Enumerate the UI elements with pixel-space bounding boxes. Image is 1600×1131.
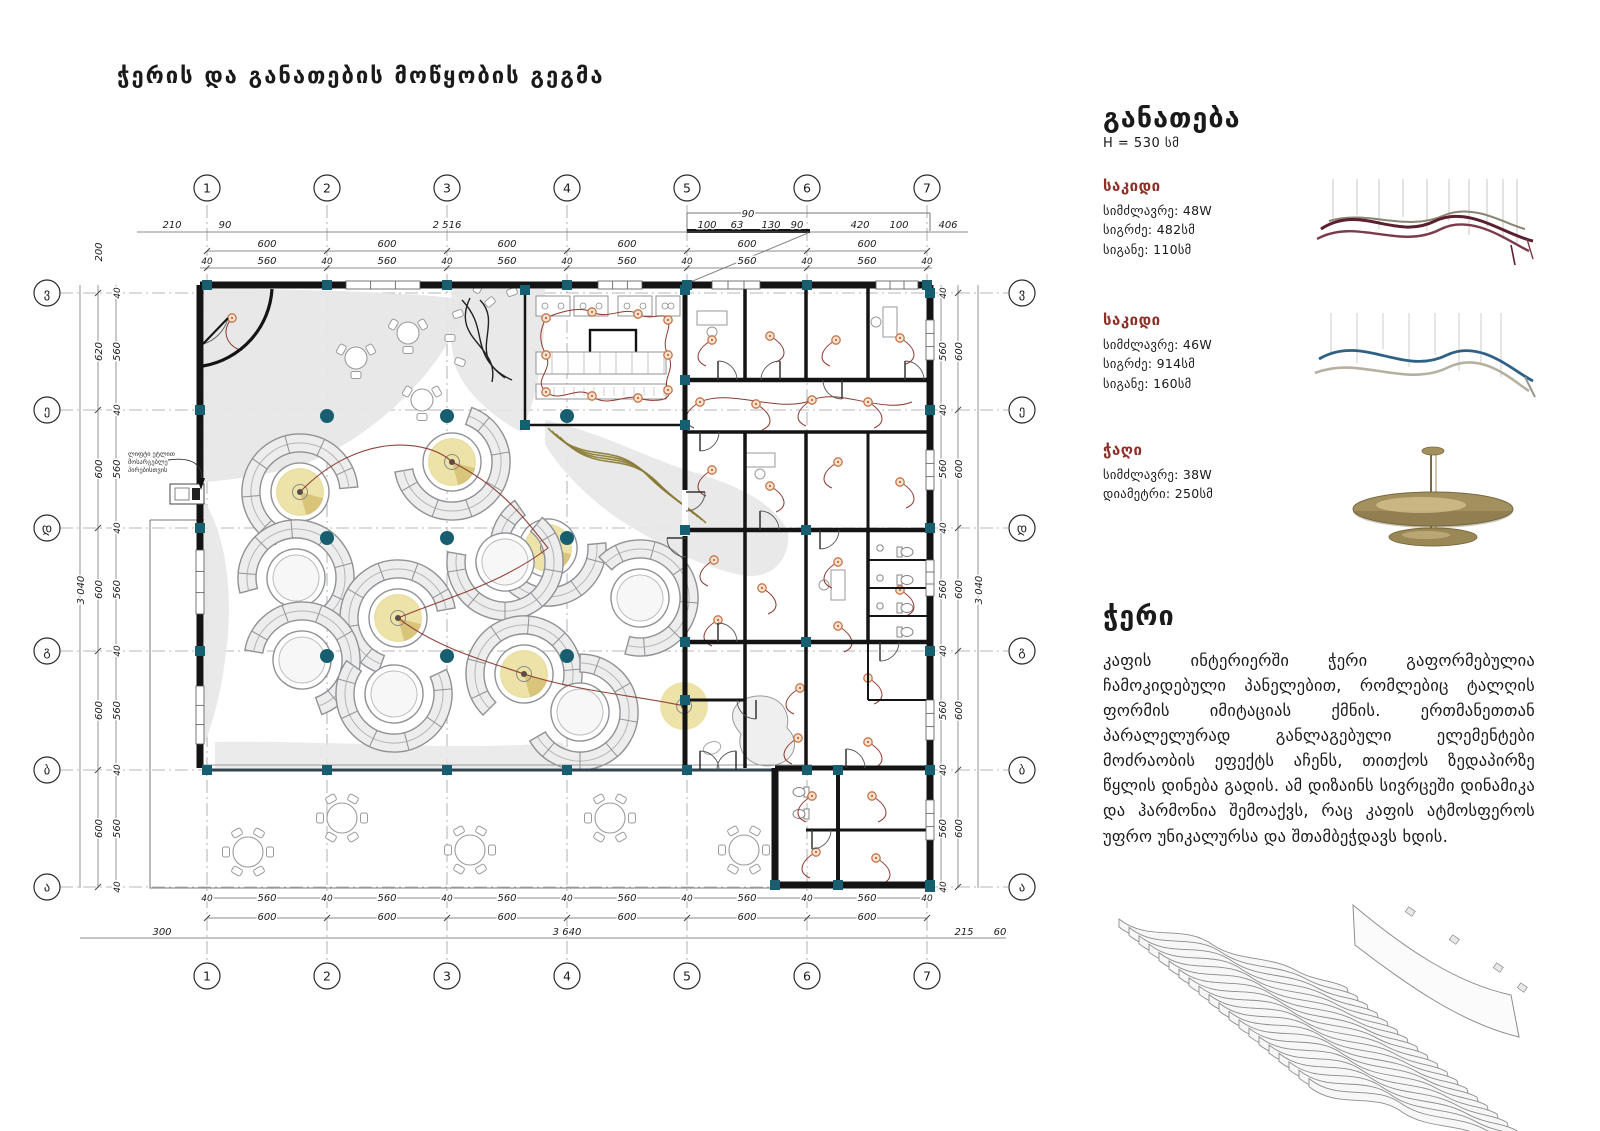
dimension-label: 40: [939, 287, 949, 299]
dimension-label: 40: [321, 257, 333, 267]
grid-bubble-label: 1: [203, 969, 211, 984]
dimension-label: 90: [791, 220, 804, 231]
dimension-label: 40: [113, 645, 123, 657]
grid-bubble-label: 5: [683, 181, 691, 196]
dimension-label: 560: [737, 893, 756, 904]
dimension-label: 600: [94, 701, 105, 720]
dimension-label: 40: [681, 257, 693, 267]
page: ჭერის და განათების მოწყობის გეგმა ლიფტი …: [0, 0, 1600, 1131]
dimension-label: 90: [742, 209, 755, 220]
dimension-label: 560: [112, 701, 123, 720]
grid-bubble-label: ვ: [1019, 286, 1025, 301]
dimension-label: 560: [112, 459, 123, 478]
grid-bubble-label: 5: [683, 969, 691, 984]
dimension-label: 600: [377, 239, 396, 250]
dimension-label: 40: [441, 894, 453, 904]
ceiling-heading: ჭერი: [1103, 601, 1548, 632]
grid-bubble-label: გ: [1018, 644, 1025, 659]
lift-annotation-line: ლიფტი ეტლით: [128, 451, 175, 458]
dimension-label: 560: [617, 256, 636, 267]
legend-item-chandelier: ჭაღი სიმძლავრე: 38W დიამეტრი: 250სმ: [1103, 441, 1548, 549]
fixture-spec: სიგანე: 160სმ: [1103, 374, 1303, 393]
dimension-label: 40: [113, 404, 123, 416]
dimension-label: 40: [441, 257, 453, 267]
dimension-label: 40: [321, 894, 333, 904]
dimension-label: 600: [257, 239, 276, 250]
dimension-label: 40: [801, 257, 813, 267]
grid-bubble-label: 4: [563, 181, 571, 196]
dimension-label: 560: [938, 459, 949, 478]
grid-bubble-label: 1: [203, 181, 211, 196]
dimension-label: 600: [497, 239, 516, 250]
grid-bubble-label: 3: [443, 969, 451, 984]
fixture-spec: სიმძლავრე: 48W: [1103, 201, 1303, 220]
dimension-label: 600: [857, 239, 876, 250]
grid-bubble-label: 6: [803, 181, 811, 196]
fixture-name: საკიდი: [1103, 311, 1303, 329]
dimension-label: 3 040: [76, 576, 87, 605]
dimension-label: 40: [939, 764, 949, 776]
doors: [667, 361, 924, 849]
ceiling-section: ჭერი კაფის ინტერიერში ჭერი გაფორმებულია …: [1103, 601, 1548, 1131]
legend-item-pendant-1: საკიდი სიმძლავრე: 48W სიგრძე: 482სმ სიგა…: [1103, 177, 1548, 285]
dimension-label: 600: [954, 459, 965, 478]
dimension-label: 40: [939, 404, 949, 416]
dimension-label: 90: [219, 220, 232, 231]
dimension-label: 600: [737, 239, 756, 250]
dimension-label: 40: [939, 522, 949, 534]
dimension-label: 130: [761, 220, 780, 231]
legend-item-pendant-2: საკიდი სიმძლავრე: 46W სიგრძე: 914სმ სიგა…: [1103, 311, 1548, 415]
dimension-label: 600: [857, 912, 876, 923]
dimension-label: 600: [737, 912, 756, 923]
dimension-label: 40: [681, 894, 693, 904]
dimension-label: 600: [617, 912, 636, 923]
fixture-spec: დიამეტრი: 250სმ: [1103, 484, 1303, 503]
grid-bubble-label: ე: [44, 403, 50, 418]
lighting-height-note: H = 530 სმ: [1103, 136, 1548, 151]
dimension-label: 215: [954, 927, 973, 938]
dimension-label: 600: [94, 459, 105, 478]
dimension-label: 560: [857, 893, 876, 904]
dimension-label: 40: [561, 257, 573, 267]
dimension-label: 100: [697, 220, 716, 231]
dimension-label: 600: [94, 819, 105, 838]
grid-bubble-label: 7: [923, 969, 931, 984]
grid-bubble-label: ე: [1019, 403, 1025, 418]
fixture-spec: სიგრძე: 482სმ: [1103, 220, 1303, 239]
dimension-label: 40: [113, 287, 123, 299]
dimension-label: 60: [994, 927, 1007, 938]
dimension-label: 40: [921, 257, 933, 267]
dimension-label: 600: [377, 912, 396, 923]
grid-bubble-label: ბ: [1019, 763, 1025, 778]
fixture-name: ჭაღი: [1103, 441, 1303, 459]
dimension-label: 40: [939, 645, 949, 657]
dimension-label: 560: [938, 580, 949, 599]
grid-bubble-label: ა: [1019, 880, 1025, 895]
dimension-label: 600: [617, 239, 636, 250]
grid-bubble-label: დ: [1017, 521, 1027, 536]
fixture-spec: სიმძლავრე: 46W: [1103, 335, 1303, 354]
right-panel: განათება H = 530 სმ საკიდი სიმძლავრე: 48…: [1103, 105, 1548, 1131]
lift-annotation: ლიფტი ეტლითმოსარგებლეპირებისთვის: [128, 451, 205, 504]
dimension-label: 600: [954, 819, 965, 838]
dimension-label: 560: [497, 893, 516, 904]
dimension-label: 40: [921, 894, 933, 904]
dimension-label: 560: [938, 819, 949, 838]
dimension-label: 40: [561, 894, 573, 904]
dimension-label: 560: [617, 893, 636, 904]
dimension-label: 560: [112, 819, 123, 838]
dimension-label: 560: [112, 342, 123, 361]
dimension-label: 560: [377, 256, 396, 267]
dimension-label: 63: [731, 220, 744, 231]
dimension-label: 560: [112, 580, 123, 599]
pendant-1-image: [1313, 177, 1548, 285]
dimension-label: 560: [857, 256, 876, 267]
grid-bubble-label: 4: [563, 969, 571, 984]
grid-bubble-label: ბ: [44, 763, 50, 778]
floor-plan: ლიფტი ეტლითმოსარგებლეპირებისთვის 210902 …: [0, 0, 1075, 1030]
dimension-label: 40: [113, 881, 123, 893]
dimension-label: 40: [939, 881, 949, 893]
dimension-label: 300: [152, 927, 171, 938]
dimension-label: 560: [938, 342, 949, 361]
dimension-label: 2 516: [433, 220, 462, 231]
grid-bubble-label: 3: [443, 181, 451, 196]
dimension-label: 40: [201, 894, 213, 904]
dimension-label: 620: [94, 342, 105, 361]
grid-bubble-label: 6: [803, 969, 811, 984]
dimension-label: 600: [954, 701, 965, 720]
grid-bubble-label: 7: [923, 181, 931, 196]
dimension-label: 560: [257, 893, 276, 904]
fixture-name: საკიდი: [1103, 177, 1303, 195]
grid-bubble-label: ა: [44, 880, 50, 895]
grid-bubble-label: ვ: [44, 286, 50, 301]
fixture-spec: სიგანე: 110სმ: [1103, 240, 1303, 259]
dimension-label: 600: [94, 580, 105, 599]
pendant-2-image: [1313, 311, 1548, 415]
dimension-label: 560: [938, 701, 949, 720]
dimension-label: 406: [938, 220, 957, 231]
dimension-label: 420: [850, 220, 869, 231]
dimension-label: 560: [737, 256, 756, 267]
dimension-label: 200: [94, 242, 105, 261]
dimension-label: 600: [954, 342, 965, 361]
dimension-label: 600: [954, 580, 965, 599]
lift-annotation-line: პირებისთვის: [128, 465, 167, 474]
dimension-label: 40: [201, 257, 213, 267]
fixture-spec: სიგრძე: 914სმ: [1103, 354, 1303, 373]
lift-annotation-line: მოსარგებლე: [128, 457, 168, 466]
dimension-label: 560: [377, 893, 396, 904]
dimension-label: 3 040: [974, 576, 985, 605]
dimension-label: 40: [113, 764, 123, 776]
lighting-heading: განათება: [1103, 105, 1548, 132]
dimension-label: 40: [801, 894, 813, 904]
fixture-spec: სიმძლავრე: 38W: [1103, 465, 1303, 484]
grid-bubble-label: დ: [42, 521, 52, 536]
dimension-label: 600: [257, 912, 276, 923]
dimension-label: 3 640: [553, 927, 582, 938]
dimension-label: 210: [162, 220, 181, 231]
dimension-label: 560: [257, 256, 276, 267]
grid-bubble-label: გ: [43, 644, 50, 659]
grid-bubble-label: 2: [323, 969, 331, 984]
chandelier-image: [1318, 441, 1548, 549]
dimension-label: 600: [497, 912, 516, 923]
ceiling-description: კაფის ინტერიერში ჭერი გაფორმებულია ჩამოკ…: [1103, 648, 1535, 849]
dimension-label: 560: [497, 256, 516, 267]
ceiling-render-image: [1103, 863, 1543, 1131]
kitchen-equipment: [536, 296, 680, 399]
grid-bubble-label: 2: [323, 181, 331, 196]
dimension-label: 100: [889, 220, 908, 231]
dimension-label: 40: [113, 522, 123, 534]
